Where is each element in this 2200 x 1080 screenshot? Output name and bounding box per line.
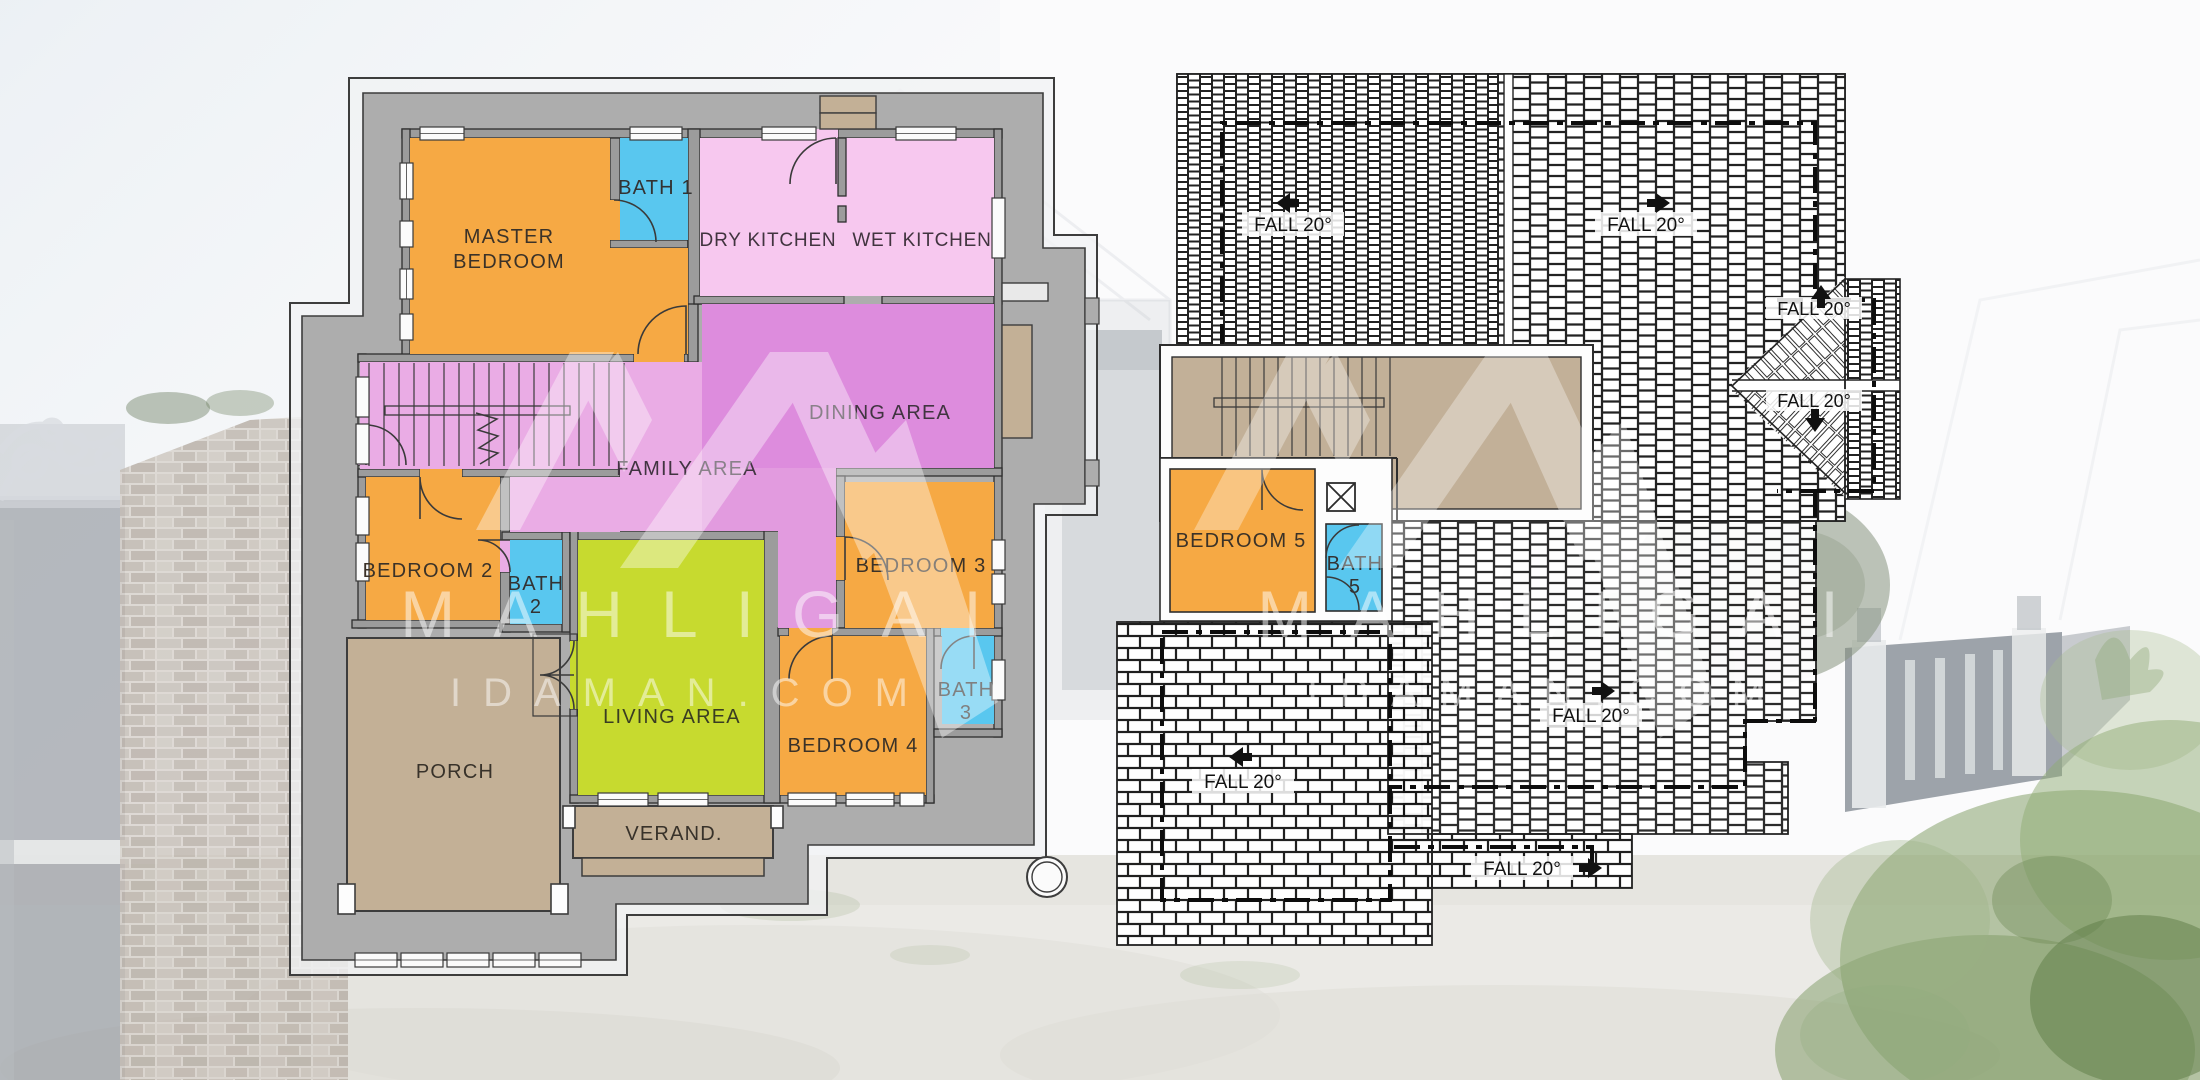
svg-text:MAHLIGAI: MAHLIGAI bbox=[1257, 577, 1876, 651]
svg-text:PORCH: PORCH bbox=[416, 761, 494, 783]
svg-text:BEDROOM 5: BEDROOM 5 bbox=[1176, 530, 1307, 552]
svg-text:IDAMAN.COM: IDAMAN.COM bbox=[450, 671, 930, 715]
svg-text:BEDROOM 4: BEDROOM 4 bbox=[788, 735, 919, 757]
svg-text:MAHLIGAI: MAHLIGAI bbox=[400, 577, 1019, 651]
svg-text:FALL 20°: FALL 20° bbox=[1777, 299, 1851, 319]
svg-text:BATH 1: BATH 1 bbox=[618, 177, 694, 199]
svg-text:WET KITCHEN: WET KITCHEN bbox=[852, 230, 991, 251]
svg-text:FALL 20°: FALL 20° bbox=[1204, 772, 1282, 793]
svg-text:FALL 20°: FALL 20° bbox=[1483, 859, 1561, 880]
svg-text:VERAND.: VERAND. bbox=[625, 823, 722, 845]
svg-text:FALL 20°: FALL 20° bbox=[1777, 391, 1851, 411]
svg-text:IDAMAN.COM: IDAMAN.COM bbox=[1307, 671, 1787, 715]
svg-text:MASTER: MASTER bbox=[464, 226, 555, 248]
svg-text:FALL 20°: FALL 20° bbox=[1607, 215, 1685, 236]
svg-text:DRY KITCHEN: DRY KITCHEN bbox=[700, 230, 837, 251]
svg-text:FALL 20°: FALL 20° bbox=[1254, 215, 1332, 236]
svg-text:BEDROOM: BEDROOM bbox=[453, 251, 565, 273]
